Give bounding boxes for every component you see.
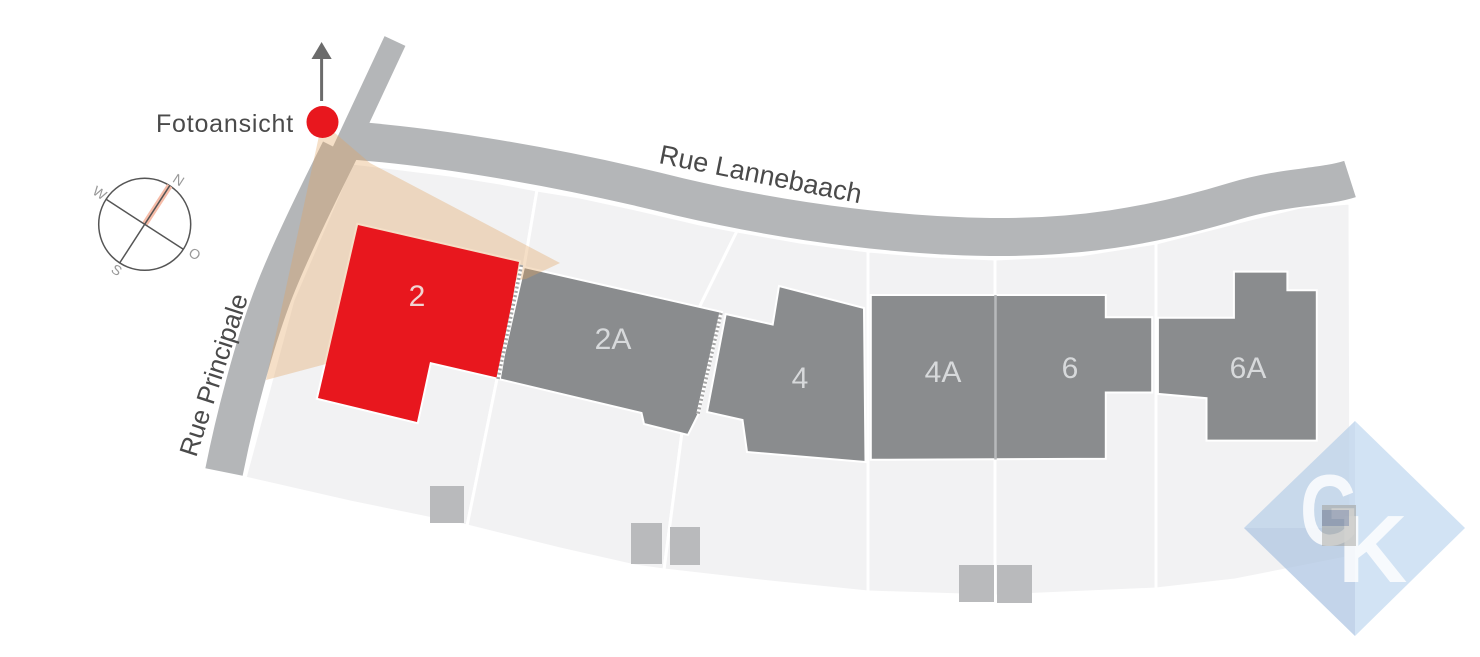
svg-text:2A: 2A [595,323,632,356]
svg-text:2: 2 [409,280,426,313]
svg-text:4A: 4A [925,356,962,389]
svg-text:4: 4 [792,362,809,395]
svg-text:6: 6 [1062,352,1079,385]
svg-text:6A: 6A [1230,352,1267,385]
svg-text:Fotoansicht: Fotoansicht [156,110,294,138]
